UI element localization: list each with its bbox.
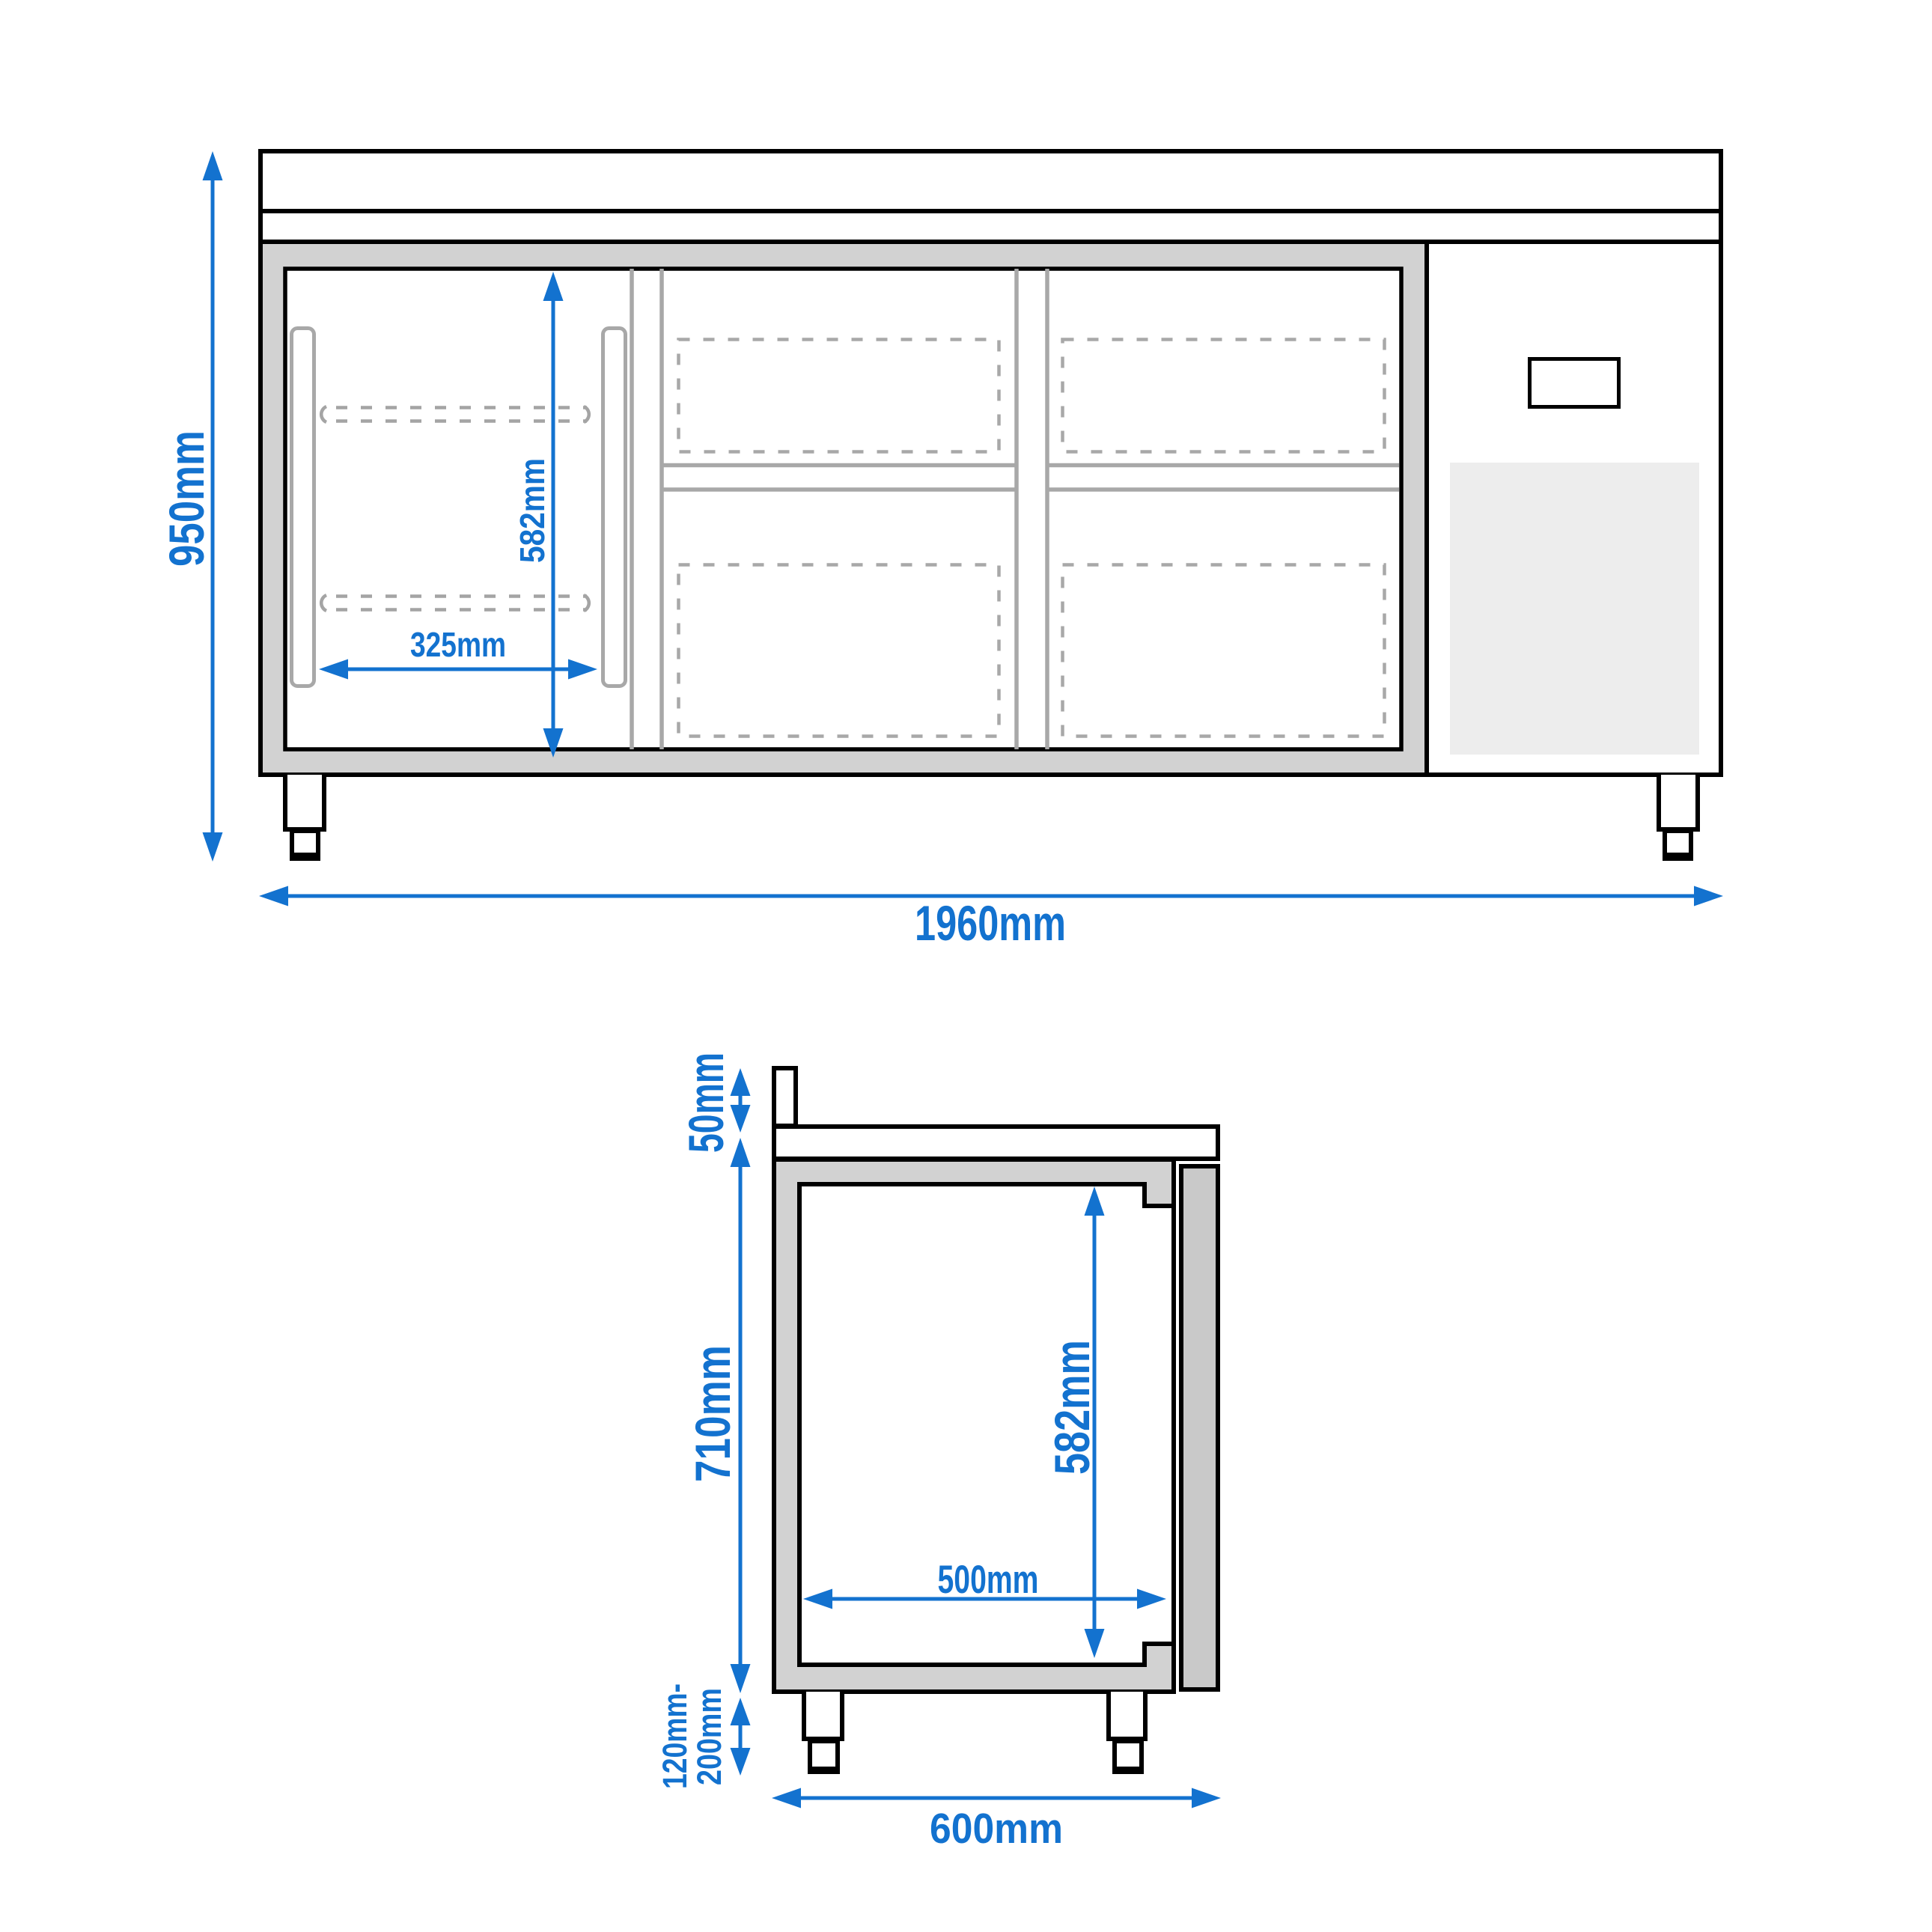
svg-text:325mm: 325mm xyxy=(410,625,506,664)
svg-text:500mm: 500mm xyxy=(938,1558,1039,1602)
svg-text:1960mm: 1960mm xyxy=(915,895,1066,951)
svg-text:582mm: 582mm xyxy=(513,458,552,563)
svg-text:200mm: 200mm xyxy=(690,1688,728,1785)
svg-text:50mm: 50mm xyxy=(678,1052,734,1153)
svg-text:950mm: 950mm xyxy=(159,430,214,567)
svg-text:600mm: 600mm xyxy=(930,1805,1063,1853)
svg-text:710mm: 710mm xyxy=(685,1345,740,1482)
svg-text:582mm: 582mm xyxy=(1044,1340,1100,1475)
svg-text:120mm-: 120mm- xyxy=(656,1683,694,1789)
